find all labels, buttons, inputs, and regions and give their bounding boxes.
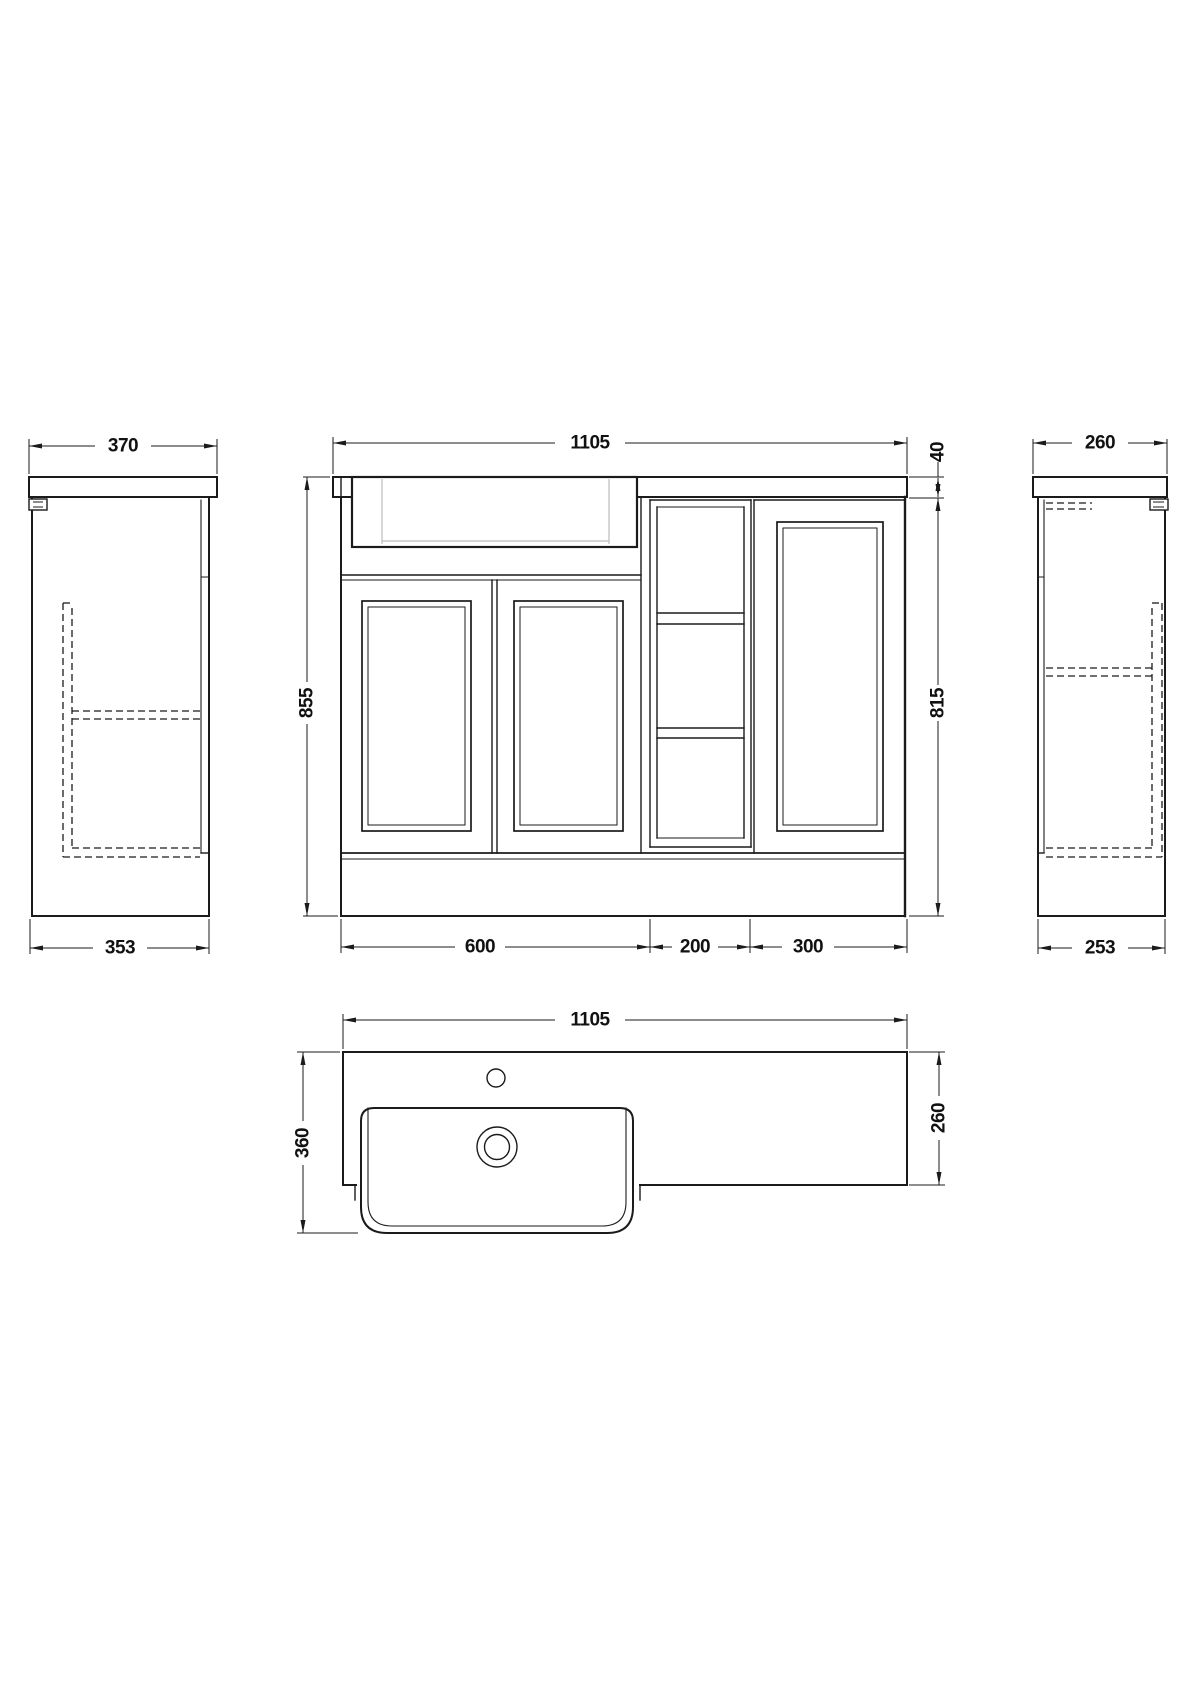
dimension-left-counter-depth: 370	[29, 436, 217, 475]
right-view-cabinet-body	[1038, 497, 1165, 916]
wc-door-panel	[777, 522, 883, 831]
dim-label-200: 200	[680, 937, 710, 958]
left-view-cabinet-body	[32, 497, 209, 916]
front-elevation: 1105 855 40 815	[297, 433, 949, 958]
dimension-worktop-thickness: 40	[909, 442, 949, 498]
dim-label-360: 360	[293, 1128, 314, 1158]
dimension-right-counter-depth: 260	[1033, 433, 1167, 475]
dim-label-253: 253	[1085, 938, 1115, 959]
dim-label-353: 353	[105, 938, 135, 959]
dimension-left-cabinet-depth: 353	[30, 919, 209, 959]
wc-unit-door	[754, 500, 905, 853]
dimension-plan-worktop-depth: 260	[909, 1052, 950, 1185]
dimension-right-cabinet-depth: 253	[1038, 919, 1165, 959]
basin-unit-doors	[341, 498, 641, 853]
left-door-panel	[362, 601, 471, 831]
dim-label-370: 370	[108, 436, 138, 457]
right-door-panel	[514, 601, 623, 831]
dim-label-300: 300	[793, 937, 823, 958]
technical-drawing-sheet: 370 353	[0, 0, 1190, 1684]
left-view-worktop	[29, 477, 217, 497]
hinge-bracket-icon	[29, 499, 47, 510]
side-view-left: 370 353	[29, 436, 217, 959]
dim-label-40: 40	[928, 442, 949, 462]
dimension-front-overall-height: 855	[297, 477, 339, 916]
plan-view: 1105 360 260	[293, 1010, 950, 1234]
dim-label-855: 855	[297, 687, 318, 718]
tap-hole	[477, 1127, 517, 1167]
basin-front	[352, 477, 637, 547]
hinge-bracket-icon	[1150, 499, 1168, 510]
open-shelf-unit	[650, 500, 751, 847]
dimension-front-section-widths: 600 200 300	[341, 919, 907, 958]
vanity-unit-technical-drawing: 370 353	[0, 0, 1190, 1684]
dimension-cabinet-height: 815	[909, 498, 949, 916]
dim-label-815: 815	[928, 687, 949, 718]
dimension-front-overall-width: 1105	[333, 433, 907, 475]
dim-label-1105-plan: 1105	[570, 1010, 610, 1031]
side-view-right: 260 253	[1033, 433, 1168, 959]
dim-label-1105-front: 1105	[570, 433, 610, 454]
dim-label-260-right: 260	[1085, 433, 1115, 454]
right-view-worktop	[1033, 477, 1167, 497]
dim-label-260-plan: 260	[929, 1103, 950, 1133]
dim-label-600: 600	[465, 937, 495, 958]
dimension-plan-overall-width: 1105	[343, 1010, 907, 1050]
basin-overflow-hole	[487, 1069, 505, 1087]
